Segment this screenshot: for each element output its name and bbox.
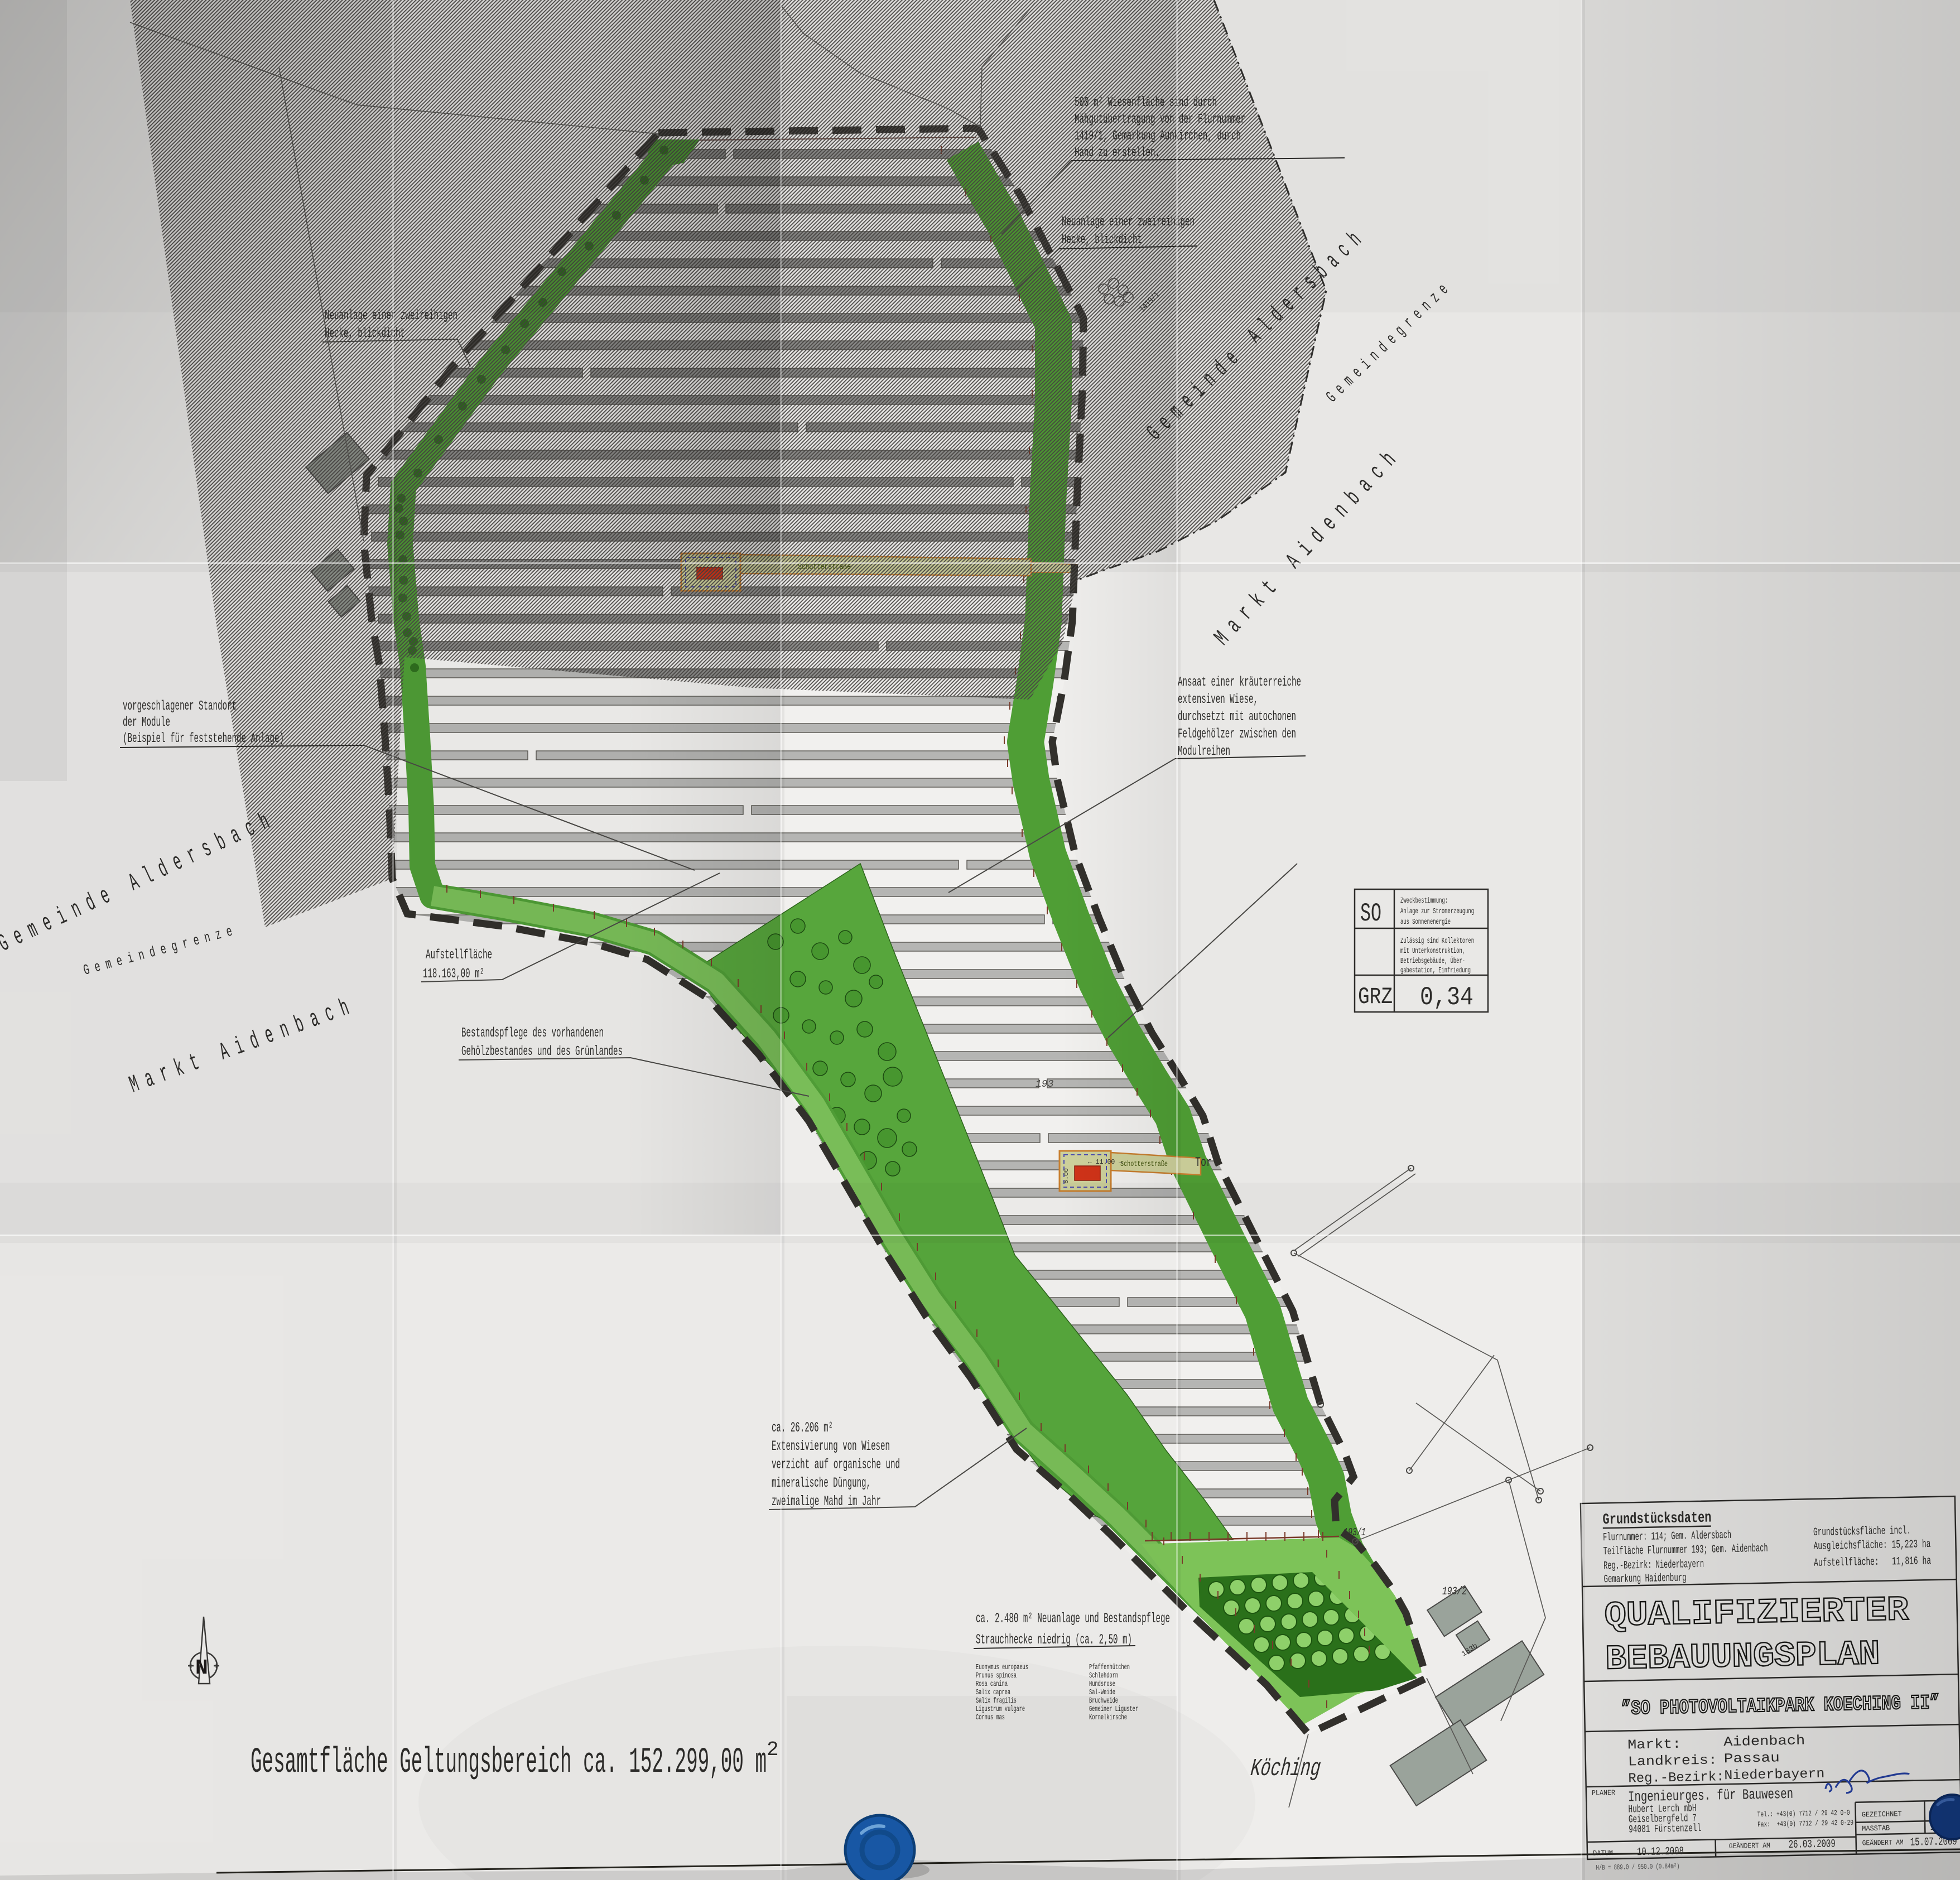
svg-text:Köching: Köching	[1248, 1756, 1324, 1783]
svg-text:193/1: 193/1	[1343, 1526, 1366, 1539]
svg-text:193: 193	[1036, 1079, 1054, 1090]
svg-text:193/2: 193/2	[1442, 1585, 1467, 1598]
